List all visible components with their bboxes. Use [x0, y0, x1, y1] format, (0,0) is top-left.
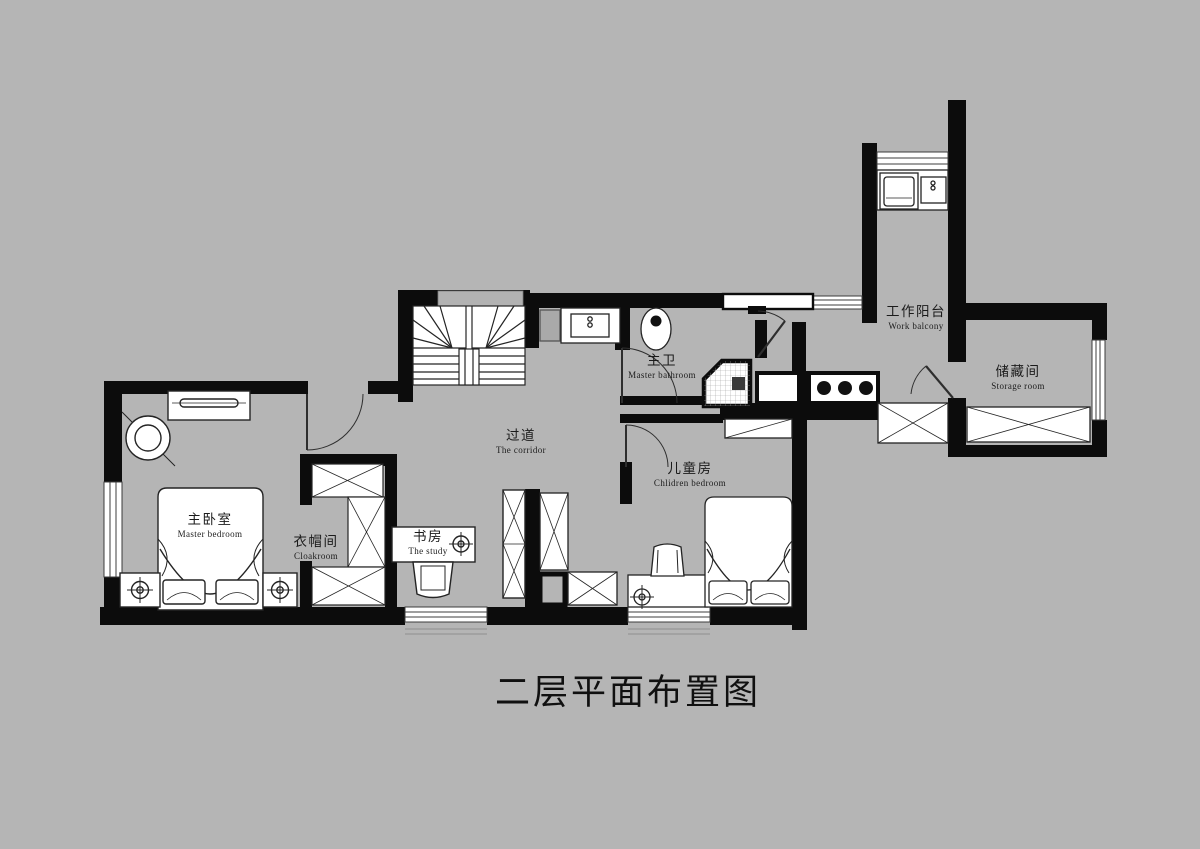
- window-balcony-top: [877, 152, 948, 170]
- cloakroom-wardrobe: [348, 497, 385, 567]
- counter-three-knobs: [757, 373, 878, 403]
- master-bedroom-furniture: [120, 391, 297, 610]
- master-bed: [158, 488, 263, 610]
- shower: [704, 361, 750, 406]
- window-bathroom-north: [813, 296, 862, 309]
- laundry-sink: [921, 177, 946, 203]
- study-desk: [392, 527, 475, 562]
- cloakroom-cabinet-bottom: [312, 567, 385, 605]
- children-desk: [628, 575, 708, 609]
- washing-machine: [880, 173, 918, 209]
- study-furniture: [392, 490, 525, 598]
- corridor-wardrobe: [503, 490, 525, 598]
- floor-plan-drawing: [0, 0, 1200, 849]
- laundry-counter: [877, 170, 948, 210]
- door-storage-room: [911, 366, 953, 398]
- bath-vanity: [561, 308, 620, 343]
- children-column: [540, 574, 565, 605]
- sliding-door-track: [723, 294, 813, 314]
- window-children-bottom: [628, 607, 710, 634]
- toilet: [641, 308, 671, 350]
- stair-landing: [438, 291, 523, 306]
- cloakroom-cabinet-top: [312, 464, 383, 497]
- study-chair: [413, 562, 453, 598]
- under-window-cabinet: [725, 419, 792, 438]
- cloakroom-furniture: [312, 464, 385, 605]
- children-chair: [651, 544, 684, 576]
- balcony-cabinet: [878, 403, 948, 443]
- children-bed: [705, 497, 792, 607]
- bathroom-fixtures: [540, 308, 750, 406]
- children-room-furniture: [540, 419, 792, 609]
- corner-chair: [122, 412, 175, 466]
- floor-plan: 主卧室 Master bedroom 衣帽间 Cloakroom 书房 The …: [0, 0, 1200, 849]
- door-master-bathroom: [622, 348, 677, 403]
- window-storage-right: [1092, 340, 1105, 420]
- window-master-bedroom-left: [104, 482, 122, 577]
- nightstand-left: [120, 573, 160, 607]
- duct-shaft: [540, 310, 560, 341]
- plan-title: 二层平面布置图: [495, 664, 761, 715]
- children-wardrobe: [540, 493, 568, 570]
- storage-cabinet: [967, 407, 1090, 442]
- dresser: [168, 391, 250, 420]
- door-master-bedroom: [307, 394, 363, 450]
- door-children-bedroom: [626, 425, 668, 467]
- children-cabinet: [568, 572, 617, 605]
- stairs: [413, 306, 525, 385]
- nightstand-right: [263, 573, 297, 607]
- window-study-bottom: [405, 607, 487, 634]
